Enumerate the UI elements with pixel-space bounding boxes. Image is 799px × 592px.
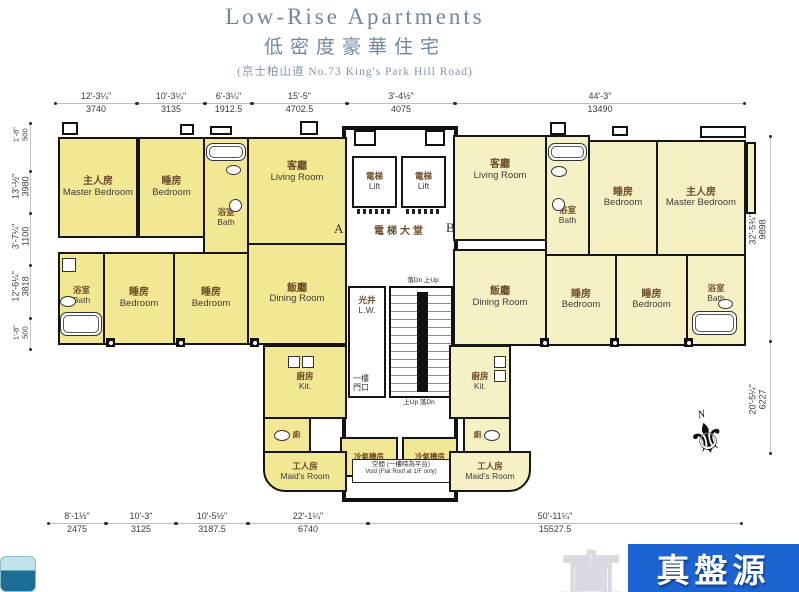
- address-line: (京士柏山道 No.73 King's Park Hill Road): [0, 63, 710, 79]
- entrance-label: 一樓 門口: [350, 374, 372, 392]
- dim-top-3: 6'-3¼"1912.5: [205, 92, 252, 115]
- fleur-de-lis-icon: ⚜: [683, 416, 731, 462]
- sink: [226, 165, 241, 175]
- window: [550, 122, 566, 135]
- lift-1: 電梯 Lift: [352, 156, 397, 208]
- bath-cabinet: [62, 258, 76, 272]
- dim-line: [205, 103, 252, 104]
- dim-metric: 1912.5: [215, 105, 243, 115]
- room-a-toilet: 廁: [263, 417, 311, 453]
- kitchen-counter: [494, 356, 506, 368]
- room-b-dining-room: 飯廳Dining Room: [453, 249, 547, 346]
- dim-imperial: 22'-1¼": [293, 512, 323, 522]
- bay-window: [700, 126, 746, 138]
- door-pivot: [176, 338, 185, 347]
- toilet-bowl: [552, 198, 565, 211]
- north-compass: N ⚜: [681, 404, 732, 462]
- dim-metric: 6740: [298, 525, 318, 535]
- door-pivot: [540, 338, 549, 347]
- stair-newel: [417, 292, 428, 392]
- dim-metric: 3740: [86, 105, 106, 115]
- dim-metric: 3125: [131, 525, 151, 535]
- dim-line: [347, 103, 455, 104]
- lift-label-en: Lift: [418, 182, 429, 192]
- dim-metric: 4075: [391, 105, 411, 115]
- room-a-dining-room: 飯廳Dining Room: [247, 243, 347, 345]
- dim-line: [48, 523, 106, 524]
- window: [612, 126, 628, 136]
- room-b-maid-room: 工人房Maid's Room: [449, 451, 531, 492]
- page-title: Low-Rise Apartments: [0, 4, 710, 30]
- door-pivot: [684, 338, 693, 347]
- lift-2: 電梯 Lift: [401, 156, 446, 208]
- bathtub: [206, 143, 246, 161]
- bathtub: [548, 143, 587, 161]
- dim-imperial: 15'-5": [288, 92, 311, 102]
- dim-line: [252, 103, 347, 104]
- dim-top-6: 44'-3"13490: [455, 92, 745, 115]
- dim-imperial: 10'-3": [130, 512, 153, 522]
- unit-b-label: B: [446, 220, 455, 236]
- dim-imperial: 44'-3": [589, 92, 612, 102]
- lift-lobby-label: 電梯大堂: [346, 221, 454, 239]
- bay-window-side: [746, 142, 756, 214]
- kitchen-counter: [288, 356, 300, 368]
- dim-imperial: 6'-3¼": [216, 92, 241, 102]
- stair-bottom-label: 上Up 落Dn: [392, 399, 446, 406]
- dim-metric: 15527.5: [539, 525, 572, 535]
- stair-top-label: 落Dn 上Up: [396, 277, 450, 284]
- dim-line: [137, 103, 205, 104]
- room-b-living-room: 客廳Living Room: [453, 135, 547, 241]
- toilet-bowl: [484, 430, 500, 441]
- dim-line: [176, 523, 248, 524]
- lift-door-hatch: [406, 209, 440, 214]
- dim-top-4: 15'-5"4702.5: [252, 92, 347, 115]
- sink: [60, 296, 76, 307]
- brand-watermark: 真盤源: [628, 544, 799, 592]
- dim-top-1: 12'-3¼"3740: [55, 92, 137, 115]
- dim-line: [55, 103, 137, 104]
- dim-line: [455, 103, 745, 104]
- dim-top-5: 3'-4½"4075: [347, 92, 455, 115]
- lift-label-en: Lift: [369, 182, 380, 192]
- core-duct: [425, 130, 445, 146]
- lift-door-hatch: [357, 209, 391, 214]
- dim-line: [106, 523, 176, 524]
- kitchen-counter: [302, 356, 314, 368]
- window: [300, 121, 318, 135]
- dim-left-5: 1'-8"500: [12, 308, 29, 358]
- door-pivot: [610, 338, 619, 347]
- toilet-bowl: [229, 199, 242, 212]
- bathtub: [60, 312, 102, 336]
- dim-imperial: 8'-1½": [64, 512, 89, 522]
- header: Low-Rise Apartments 低密度豪華住宅 (京士柏山道 No.73…: [0, 4, 710, 79]
- door-pivot: [106, 338, 115, 347]
- dim-line: [368, 523, 742, 524]
- core-duct: [354, 130, 376, 146]
- room-a-bedroom-1: 睡房Bedroom: [138, 137, 205, 238]
- window: [210, 126, 232, 135]
- sink: [718, 299, 733, 309]
- dim-imperial: 12'-3¼": [81, 92, 111, 102]
- dim-bottom-2: 10'-3"3125: [106, 512, 176, 535]
- page-subtitle-chinese: 低密度豪華住宅: [0, 32, 710, 59]
- dim-bottom-1: 8'-1½"2475: [48, 512, 106, 535]
- dim-bottom-4: 22'-1¼"6740: [248, 512, 368, 535]
- floorplan-page: Low-Rise Apartments 低密度豪華住宅 (京士柏山道 No.73…: [0, 0, 799, 592]
- room-a-master-bedroom: 主人房Master Bedroom: [58, 137, 138, 238]
- dim-top-2: 10'-3¼"3135: [137, 92, 205, 115]
- sink: [551, 166, 567, 177]
- toilet-bowl: [274, 430, 290, 441]
- dim-metric: 2475: [67, 525, 87, 535]
- room-a-bedroom-2: 睡房Bedroom: [103, 252, 175, 345]
- bathtub: [692, 311, 737, 335]
- dim-metric: 13490: [587, 105, 612, 115]
- room-a-maid-room: 工人房Maid's Room: [263, 451, 347, 492]
- dim-right-2: 20'-5¼"6227: [748, 344, 769, 454]
- room-a-living-room: 客廳Living Room: [247, 137, 347, 245]
- window: [62, 122, 78, 135]
- dim-imperial: 50'-11¼": [538, 512, 573, 522]
- dim-line: [248, 523, 368, 524]
- dim-rail-right: [770, 135, 771, 455]
- room-b-toilet: 廁: [463, 417, 511, 453]
- dim-bottom-5: 50'-11¼"15527.5: [368, 512, 742, 535]
- door-pivot: [250, 338, 259, 347]
- room-a-bedroom-3: 睡房Bedroom: [173, 252, 249, 345]
- room-b-bedroom-2: 睡房Bedroom: [545, 254, 617, 346]
- dim-imperial: 10'-5½": [197, 512, 227, 522]
- window: [180, 124, 194, 135]
- room-b-bedroom-3: 睡房Bedroom: [615, 254, 688, 346]
- room-b-bedroom-1: 睡房Bedroom: [588, 140, 658, 256]
- corner-logo: [0, 556, 36, 592]
- dim-imperial: 3'-4½": [388, 92, 413, 102]
- dim-metric: 3135: [161, 105, 181, 115]
- unit-a-label: A: [334, 221, 343, 237]
- kitchen-counter: [494, 370, 506, 382]
- dim-metric: 3187.5: [198, 525, 226, 535]
- dim-imperial: 10'-3¼": [156, 92, 186, 102]
- dim-bottom-3: 10'-5½"3187.5: [176, 512, 248, 535]
- void-note: 空間 (一樓時為平台) Void (Flat Roof at 1/F only): [352, 459, 450, 483]
- room-b-master-bedroom: 主人房Master Bedroom: [656, 140, 746, 256]
- dim-metric: 4702.5: [286, 105, 314, 115]
